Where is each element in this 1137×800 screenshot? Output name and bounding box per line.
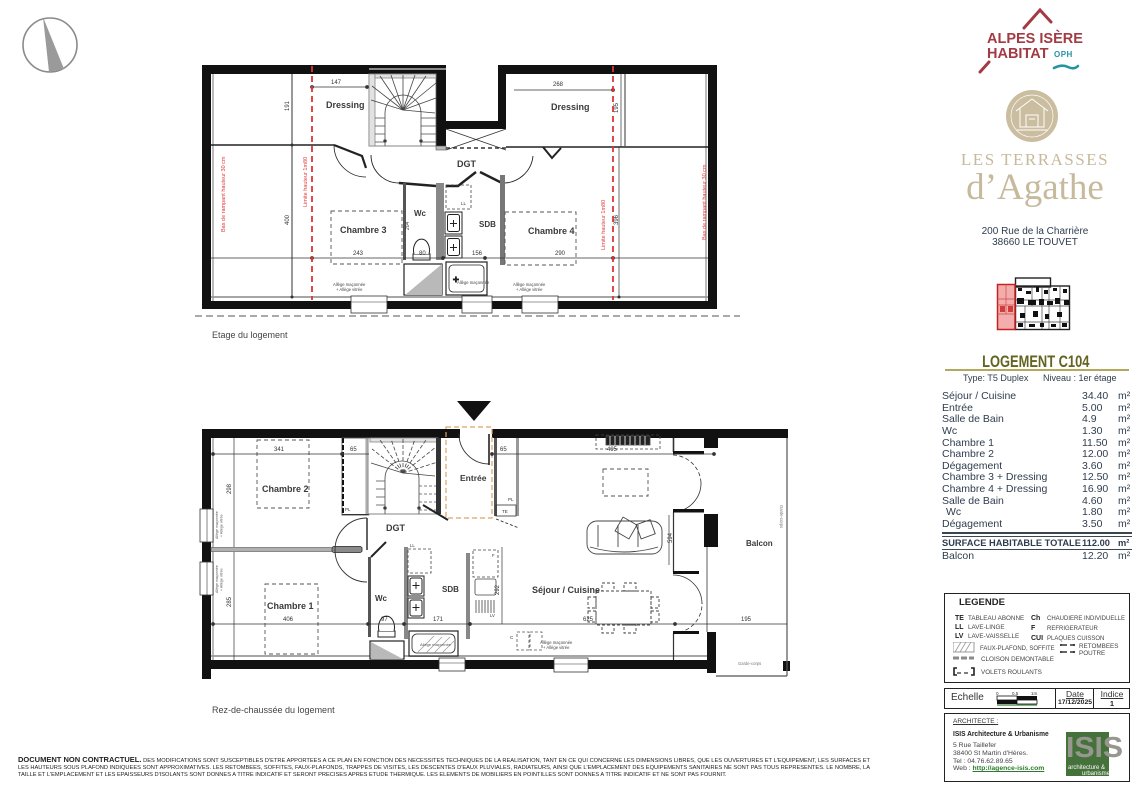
svg-text:147: 147 — [331, 80, 342, 86]
svg-text:400: 400 — [285, 214, 291, 225]
svg-text:243: 243 — [353, 251, 364, 257]
svg-text:Limite hauteur 1m80: Limite hauteur 1m80 — [601, 200, 607, 250]
svg-text:Séjour / Cuisine: Séjour / Cuisine — [532, 585, 600, 595]
svg-text:Chambre 1: Chambre 1 — [267, 601, 314, 611]
svg-text:Chambre 2: Chambre 2 — [262, 484, 309, 494]
svg-text:Bas de rampant hauteur 30 cm: Bas de rampant hauteur 30 cm — [702, 164, 708, 240]
svg-text:495: 495 — [607, 447, 618, 453]
svg-text:POUTRE: POUTRE — [1079, 650, 1105, 657]
svg-text:DGT: DGT — [457, 159, 477, 169]
svg-text:Allège maçonnée: Allège maçonnée — [215, 511, 219, 539]
svg-text:HABITAT: HABITAT — [987, 46, 1049, 62]
svg-text:Limite hauteur 1m80: Limite hauteur 1m80 — [303, 157, 309, 207]
svg-text:LV: LV — [490, 613, 495, 618]
svg-text:+ Allège vitrée: + Allège vitrée — [220, 514, 224, 537]
svg-text:VOLETS ROULANTS: VOLETS ROULANTS — [981, 669, 1042, 676]
svg-text:PL: PL — [508, 497, 514, 502]
svg-text:65: 65 — [500, 447, 507, 453]
svg-text:594: 594 — [668, 532, 674, 543]
svg-text:+ Allège vitrée: + Allège vitrée — [336, 287, 363, 292]
svg-text:CLOISON DEMONTABLE: CLOISON DEMONTABLE — [981, 656, 1054, 663]
svg-text:Bas de rampant hauteur 30 cm: Bas de rampant hauteur 30 cm — [221, 156, 227, 232]
svg-text:DGT: DGT — [386, 523, 406, 533]
svg-text:C: C — [510, 635, 514, 640]
svg-text:290: 290 — [555, 251, 566, 257]
svg-text:Balcon: Balcon — [746, 539, 773, 548]
svg-text:298: 298 — [227, 483, 233, 494]
svg-text:195: 195 — [614, 102, 620, 113]
svg-text:80: 80 — [419, 251, 426, 257]
svg-text:171: 171 — [433, 617, 444, 623]
svg-text:Chambre 3: Chambre 3 — [340, 225, 387, 235]
svg-text:65: 65 — [350, 447, 357, 453]
svg-text:Allège maçonnée: Allège maçonnée — [457, 280, 490, 285]
svg-text:FAUX-PLAFOND, SOFFITE: FAUX-PLAFOND, SOFFITE — [980, 646, 1055, 652]
svg-text:Wc: Wc — [375, 594, 388, 603]
svg-text:625: 625 — [583, 617, 594, 623]
svg-text:OPH: OPH — [1054, 50, 1073, 59]
svg-text:195: 195 — [741, 617, 752, 623]
svg-text:Allège maçonnée: Allège maçonnée — [420, 642, 452, 647]
svg-text:urbanisme: urbanisme — [1082, 771, 1111, 777]
svg-text:ISIS: ISIS — [1066, 732, 1123, 764]
svg-text:396: 396 — [614, 214, 620, 225]
svg-text:204: 204 — [405, 221, 411, 230]
svg-text:Entrée: Entrée — [460, 473, 487, 483]
svg-text:LL: LL — [410, 543, 415, 548]
svg-text:Allège maçonnée: Allège maçonnée — [215, 565, 219, 593]
svg-text:SDB: SDB — [479, 220, 496, 229]
svg-text:+ Allège vitrée: + Allège vitrée — [220, 568, 224, 591]
svg-text:Garde-corps: Garde-corps — [779, 505, 784, 528]
svg-text:SDB: SDB — [442, 585, 459, 594]
svg-text:Dressing: Dressing — [326, 100, 365, 110]
svg-text:292: 292 — [495, 584, 501, 595]
svg-text:406: 406 — [283, 617, 294, 623]
svg-text:341: 341 — [274, 447, 285, 453]
svg-text:0: 0 — [996, 691, 999, 696]
svg-text:+ Allège vitrée: + Allège vitrée — [543, 645, 570, 650]
svg-text:RETOMBEES: RETOMBEES — [1079, 643, 1118, 650]
svg-text:Wc: Wc — [414, 209, 427, 218]
svg-text:1m: 1m — [1031, 691, 1038, 696]
svg-text:F: F — [492, 553, 495, 558]
svg-text:Chambre 4: Chambre 4 — [528, 226, 575, 236]
svg-text:LL: LL — [461, 201, 467, 206]
svg-text:Dressing: Dressing — [551, 102, 590, 112]
svg-text:0.5: 0.5 — [1012, 691, 1019, 696]
svg-text:PL: PL — [345, 507, 351, 512]
svg-text:268: 268 — [553, 82, 564, 88]
svg-text:156: 156 — [472, 251, 483, 257]
svg-text:ALPES ISÈRE: ALPES ISÈRE — [987, 30, 1083, 47]
svg-text:97: 97 — [381, 617, 388, 623]
svg-text:TE: TE — [502, 509, 508, 514]
svg-text:191: 191 — [285, 100, 291, 111]
svg-text:+ Allège vitrée: + Allège vitrée — [516, 287, 543, 292]
svg-text:Garde-corps: Garde-corps — [738, 661, 761, 666]
svg-text:285: 285 — [227, 596, 233, 607]
